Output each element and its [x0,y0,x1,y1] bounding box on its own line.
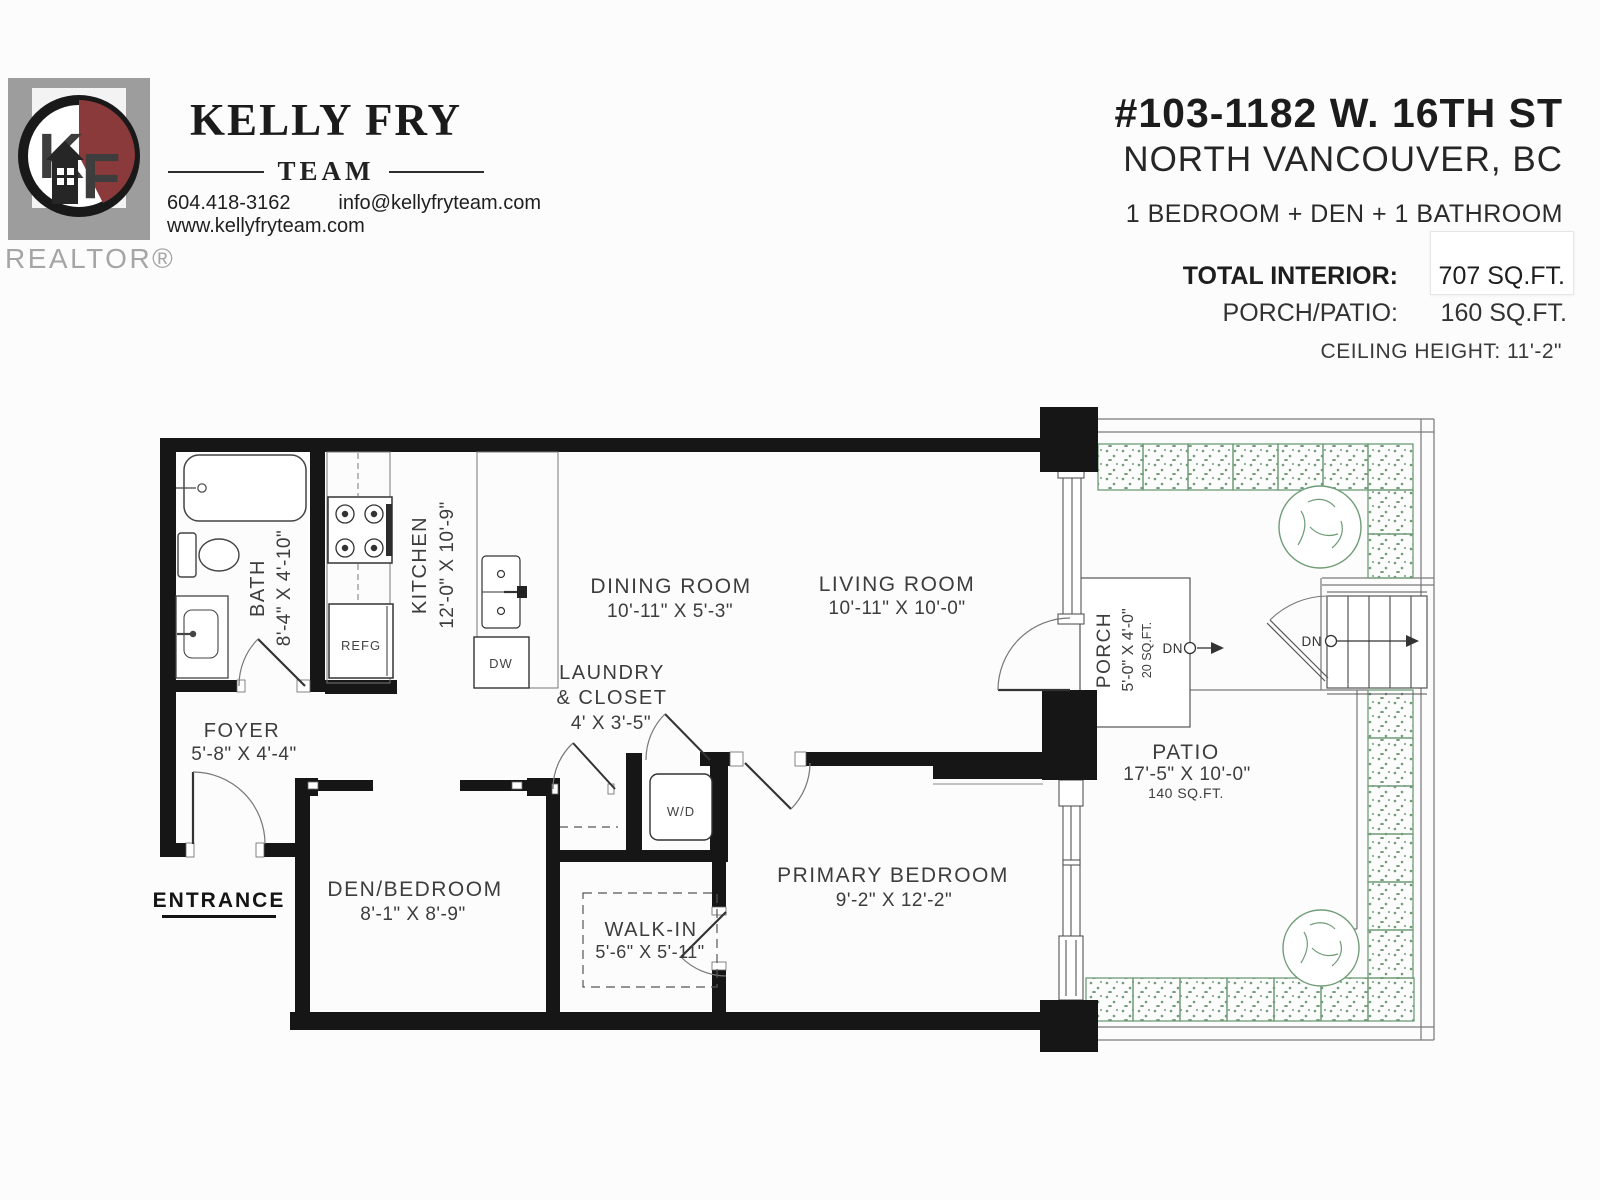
room-label-walkin: WALK-IN [604,919,697,941]
room-dims-walkin: 5'-6" X 5'-11" [595,942,704,962]
bath-door [239,639,305,686]
room-dims-patio: 17'-5" X 10'-0" [1123,764,1251,785]
room-label-living: LIVING ROOM [819,573,976,596]
entrance-door [193,772,265,844]
porch-down-arrow [1185,642,1225,654]
closet-door [553,743,615,789]
room-label-kitchen: KITCHEN [409,516,431,614]
room-label-den: DEN/BEDROOM [327,878,502,901]
hedge-planters [1086,444,1414,1021]
entrance-underline [162,915,276,918]
kitchen-sink [482,556,527,628]
room-label-laundry-2: & CLOSET [557,687,668,709]
stairs-down [1267,592,1427,694]
primary-bedroom-door [745,763,810,809]
room-label-bath: BATH [247,559,269,617]
stair-gate-leaf [1267,620,1328,681]
porch-dn-label: DN [1163,641,1184,656]
living-room-window [1058,468,1084,624]
stair-gate-swing-arc [1270,596,1328,620]
washer-dryer-label: W/D [667,804,695,819]
room-dims-living: 10'-11" X 10'-0" [828,598,965,619]
room-label-dining: DINING ROOM [590,575,751,598]
room-dims-primary: 9'-2" X 12'-2" [836,890,952,911]
room-label-porch: PORCH [1094,612,1115,688]
column [1042,690,1097,780]
room-label-primary: PRIMARY BEDROOM [777,864,1009,887]
stove [328,497,392,563]
room-label-foyer: FOYER [204,720,280,742]
tree-icon [1283,910,1359,986]
tree-icon [1279,486,1361,568]
dishwasher-label: DW [489,656,513,671]
bathroom-sink [176,596,228,678]
room-label-patio: PATIO [1152,741,1219,764]
room-area-patio: 140 SQ.FT. [1148,785,1224,801]
entrance-label: ENTRANCE [153,889,286,912]
room-dims-kitchen: 12'-0" X 10'-9" [437,501,458,629]
floor-plan-drawing: BATH 8'-4" X 4'-10" KITCHEN 12'-0" X 10'… [0,0,1600,1200]
porch-door [998,618,1070,690]
room-label-laundry-1: LAUNDRY [559,662,665,684]
room-dims-den: 8'-1" X 8'-9" [360,904,465,925]
room-dims-porch: 5'-0" X 4'-0" [1120,608,1137,691]
column [1040,407,1098,472]
column [1040,1000,1098,1052]
room-dims-foyer: 5'-8" X 4'-4" [191,744,296,765]
bathtub [176,455,306,521]
patio-sliding-door [1059,779,1083,1002]
room-dims-bath: 8'-4" X 4'-10" [274,530,295,646]
toilet [178,533,239,577]
floor-plan-page: K F REALTOR® KELLY FRY TEAM 604.418-3162… [0,0,1600,1200]
refrigerator-label: REFG [341,638,381,653]
stairs-dn-label: DN [1302,634,1323,649]
room-dims-laundry: 4' X 3'-5" [571,713,651,734]
room-area-porch: 20 SQ.FT. [1140,622,1154,678]
room-dims-dining: 10'-11" X 5'-3" [607,601,733,622]
